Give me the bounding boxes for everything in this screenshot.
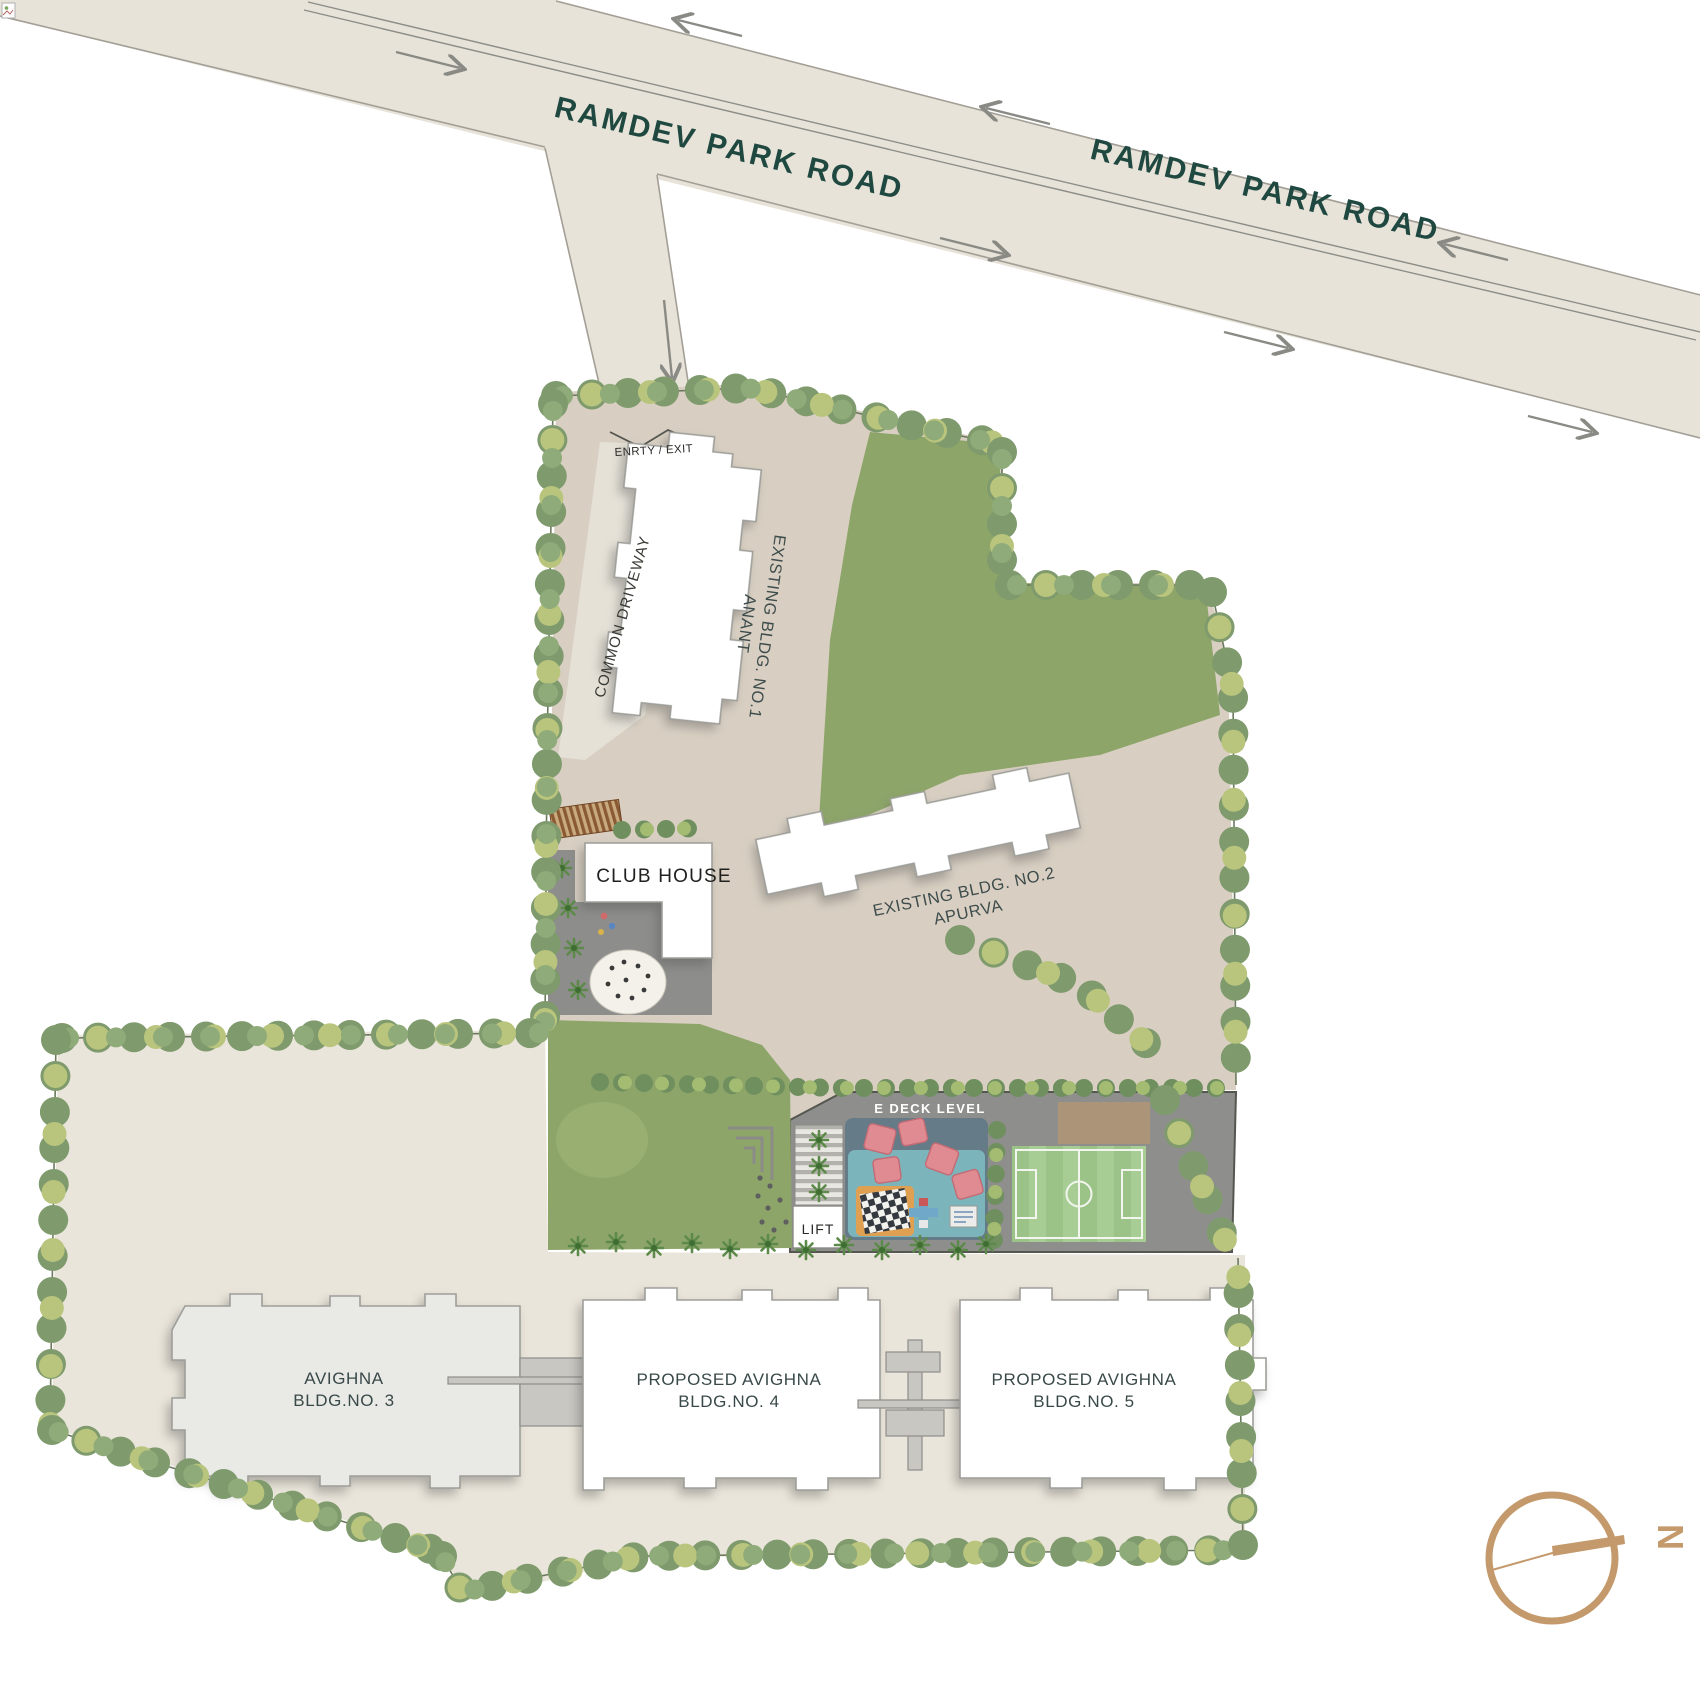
svg-text:PROPOSED AVIGHNA: PROPOSED AVIGHNA — [992, 1370, 1177, 1389]
chessboard — [859, 1188, 910, 1234]
tree-row-driveway-west — [545, 404, 553, 1028]
site-plan-drawing: RAMDEV PARK ROAD RAMDEV PARK ROAD — [0, 0, 1700, 1700]
mulch-garden — [1058, 1102, 1150, 1144]
building-4-footprint — [583, 1288, 880, 1490]
svg-text:BLDG.NO. 3: BLDG.NO. 3 — [293, 1391, 394, 1410]
site-plan-canvas: RAMDEV PARK ROAD RAMDEV PARK ROAD — [0, 0, 1700, 1700]
playground — [845, 1118, 988, 1240]
tree-row-lower-top — [62, 1033, 540, 1038]
football-pitch — [1012, 1146, 1146, 1242]
svg-text:PROPOSED AVIGHNA: PROPOSED AVIGHNA — [637, 1370, 822, 1389]
lawn-mound — [556, 1102, 648, 1178]
deck-level-label: E DECK LEVEL — [874, 1101, 985, 1116]
north-label: N — [1650, 1524, 1691, 1550]
broken-image-icon — [2, 3, 15, 18]
pebble-court — [590, 950, 666, 1014]
svg-text:BLDG.NO. 5: BLDG.NO. 5 — [1033, 1392, 1134, 1411]
arrow-right-icon — [1224, 332, 1288, 348]
road-surface — [0, 0, 1700, 438]
lift-label: LIFT — [802, 1221, 835, 1237]
club-house-label: CLUB HOUSE — [596, 866, 732, 887]
tree-row-lower-east — [1238, 1258, 1243, 1545]
svg-text:AVIGHNA: AVIGHNA — [304, 1369, 384, 1388]
svg-text:BLDG.NO. 4: BLDG.NO. 4 — [678, 1392, 779, 1411]
arrow-right-icon — [1528, 416, 1592, 432]
building-5-footprint — [960, 1288, 1266, 1490]
tree-row-lawn-notch — [1002, 452, 1205, 585]
arrow-left-icon — [678, 20, 742, 36]
compass-icon: N — [1489, 1495, 1691, 1621]
tree-row-lower-west — [50, 1040, 56, 1425]
ramdev-park-road: RAMDEV PARK ROAD RAMDEV PARK ROAD — [0, 0, 1700, 438]
